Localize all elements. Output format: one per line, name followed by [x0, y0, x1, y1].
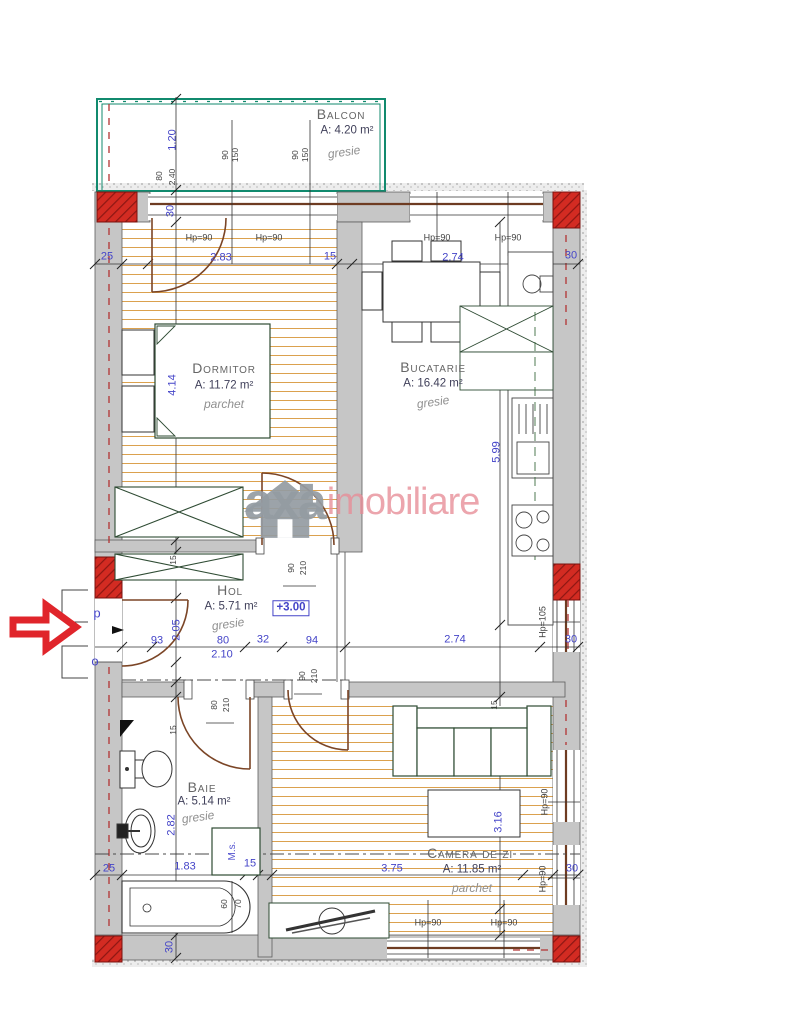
entry-letter-p: p [93, 607, 100, 620]
dim-dormitor-h: 4.14 [168, 374, 179, 395]
dim-wall-15: 15 [490, 700, 499, 709]
dim-top-25: 25 [101, 252, 113, 263]
dim-balcony-door-w: 80 [155, 171, 164, 180]
watermark-brand-pink: imobiliare [327, 483, 480, 521]
window-hp-label: Hp=90 [491, 919, 518, 928]
door-h-label: 210 [299, 561, 308, 575]
level-marker: +3.00 [272, 600, 309, 616]
wardrobes [115, 487, 243, 580]
window-w-label: 90 [291, 150, 300, 159]
dim-hol-h: 2.05 [172, 619, 183, 640]
dim-mid-93: 93 [151, 636, 163, 647]
room-area-camera: A: 11.85 m² [443, 864, 502, 876]
dim-mid-210: 2.10 [211, 650, 232, 661]
room-area-dormitor: A: 11.72 m² [195, 380, 254, 392]
dim-baie-15: 15 [244, 859, 256, 870]
watermark: axa imobiliare [244, 476, 479, 528]
plant-box [269, 903, 389, 938]
dim-mid-94: 94 [306, 636, 318, 647]
window-hp-label: Hp=90 [186, 234, 213, 243]
room-area-balcon: A: 4.20 m² [320, 125, 373, 137]
dim-baie-183: 1.83 [174, 862, 195, 873]
room-finish-camera: parchet [452, 882, 492, 894]
room-label-bucatarie: Bucatarie [400, 360, 466, 374]
window-w-label: 90 [221, 150, 230, 159]
window-hp-label: Hp=90 [256, 234, 283, 243]
toilet [120, 751, 172, 788]
door-h-label: 210 [310, 669, 319, 683]
dim-top-30: 30 [565, 251, 577, 262]
dim-balcony-door-h: 2.40 [168, 169, 177, 186]
dim-kitchen-h: 5.99 [492, 441, 503, 462]
dim-top-15: 15 [324, 252, 336, 263]
dim-bottom-30: 30 [165, 941, 176, 953]
window-hp-label: Hp=90 [415, 919, 442, 928]
dim-mid-30: 30 [565, 635, 577, 646]
bathroom-sink [117, 809, 155, 853]
window-hp-label: Hp=90 [495, 234, 522, 243]
watermark-house-icon [244, 476, 326, 542]
kitchen-counter [460, 252, 553, 625]
washing-machine-label: M.s. [228, 842, 238, 861]
dim-living-w: 3.75 [381, 864, 402, 875]
dim-wall-15: 15 [169, 725, 178, 734]
room-label-balcon: Balcon [317, 107, 366, 121]
entry-letter-o: o [91, 655, 98, 668]
room-area-bucatarie: A: 16.42 m² [403, 378, 462, 390]
room-area-baie: A: 5.14 m² [177, 796, 230, 808]
dim-baie-25: 25 [103, 864, 115, 875]
dim-living-h: 3.16 [494, 811, 505, 832]
dim-mid-274: 2.74 [444, 635, 465, 646]
room-label-dormitor: Dormitor [192, 361, 256, 375]
room-finish-dormitor: parchet [204, 398, 244, 410]
door-w-label: 90 [287, 563, 296, 572]
dim-balcony-depth: 1.20 [168, 129, 179, 150]
room-label-baie: Baie [188, 780, 217, 794]
floor-plan: axa imobiliare Balcon A: 4.20 m² gresie … [0, 0, 800, 1026]
window-h-label: 150 [231, 148, 240, 162]
room-label-camera: Camera de zi [427, 846, 513, 860]
dim-wall-30: 30 [166, 205, 177, 217]
window-h-label: 150 [301, 148, 310, 162]
sofa [393, 706, 551, 776]
dim-tub-70: 70 [234, 899, 243, 908]
dim-wall-15: 15 [169, 555, 178, 564]
window-hp-label: Hp=90 [539, 866, 548, 893]
dim-mid-32: 32 [257, 635, 269, 646]
entrance-arrow [8, 596, 82, 660]
dim-top-283: 2.83 [210, 253, 231, 264]
bathtub [122, 881, 250, 933]
door-w-label: 80 [210, 700, 219, 709]
room-area-hol: A: 5.71 m² [204, 601, 257, 613]
room-label-hol: Hol [217, 583, 243, 597]
dim-tub-60: 60 [220, 899, 229, 908]
door-w-label: 90 [298, 671, 307, 680]
door-h-label: 210 [222, 698, 231, 712]
window-hp-label: Hp=90 [541, 789, 550, 816]
hol-kitchen-boundary [337, 552, 345, 682]
window-hp-label: Hp=90 [424, 234, 451, 243]
dim-top-274: 2.74 [442, 253, 463, 264]
dim-baie-h: 2.82 [167, 814, 178, 835]
coffee-table [428, 790, 520, 837]
dim-living-30: 30 [566, 864, 578, 875]
window-hp105-label: Hp=105 [539, 606, 548, 638]
dim-mid-80: 80 [217, 636, 229, 647]
